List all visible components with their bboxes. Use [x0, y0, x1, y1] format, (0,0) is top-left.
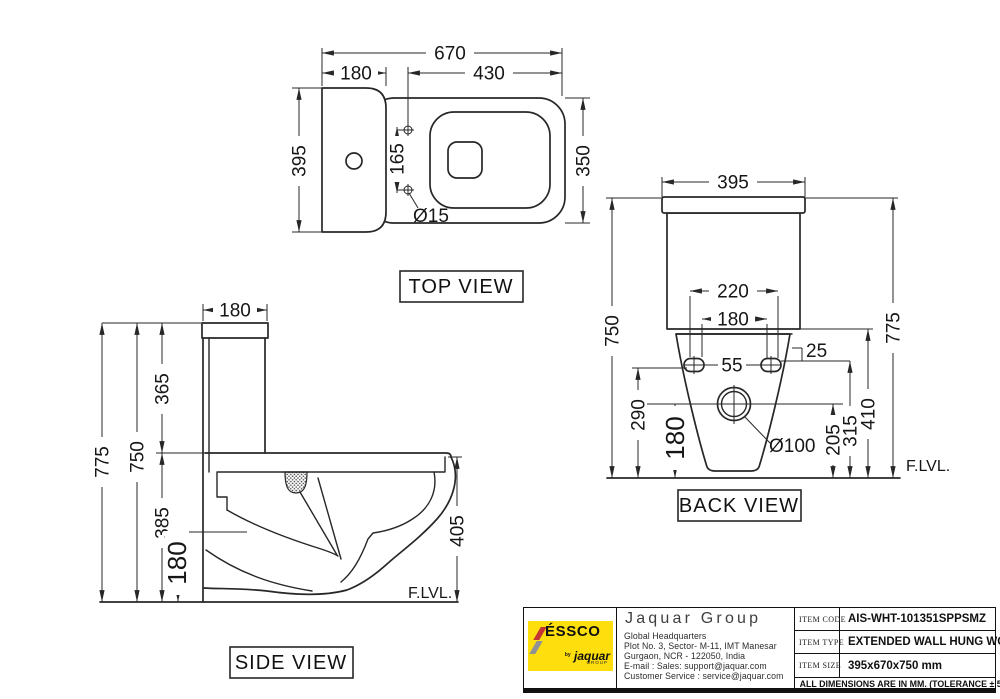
- dim-overall-width: 395: [290, 88, 311, 232]
- svg-text:180: 180: [219, 301, 251, 322]
- tank-outline-top: [322, 88, 386, 232]
- company-name: Jaquar Group: [625, 610, 794, 628]
- svg-text:430: 430: [473, 64, 505, 85]
- svg-text:750: 750: [603, 315, 624, 347]
- svg-text:395: 395: [290, 145, 311, 177]
- fixing-bolt-left: [684, 356, 704, 374]
- bowl-outer-profile-side: [204, 457, 455, 594]
- flush-inlet-hatched: [285, 472, 307, 493]
- svg-text:165: 165: [388, 143, 409, 175]
- address-line: E-mail : Sales: support@jaquar.com: [624, 661, 789, 671]
- seat-underside-line: [218, 457, 445, 472]
- dim-overall-height-side: 775: [93, 323, 114, 602]
- item-size-label: ITEM SIZE: [795, 654, 840, 677]
- dim-tank-bottom-to-floor: 410: [859, 329, 880, 478]
- dim-height-to-tank-side: 750: [128, 323, 149, 602]
- svg-text:350: 350: [574, 145, 595, 177]
- svg-text:365: 365: [153, 373, 174, 405]
- bowl-inner-profile-side: [341, 472, 435, 582]
- dim-height-to-tank-back: 750: [603, 198, 624, 478]
- dim-seat-length: 430: [408, 64, 562, 85]
- svg-text:395: 395: [717, 173, 749, 194]
- dim-overall-length: 670: [322, 44, 562, 65]
- back-view: 395 750 775 220: [603, 173, 951, 522]
- dim-tank-depth-side: 180: [203, 301, 267, 322]
- trap-lower-sweep: [206, 550, 312, 591]
- dimensions-note: ALL DIMENSIONS ARE IN MM. (TOLERANCE ± 5…: [795, 679, 981, 690]
- address-line: Gurgaon, NCR - 122050, India: [624, 651, 789, 661]
- svg-text:220: 220: [717, 282, 749, 303]
- item-type-label: ITEM TYPE: [795, 631, 840, 653]
- svg-text:775: 775: [884, 312, 905, 344]
- trap-upper-sweep: [227, 510, 338, 556]
- svg-text:180: 180: [162, 541, 192, 584]
- fixing-bolt-right: [761, 356, 781, 374]
- logo-cell: ÉSSCO by jaquar GROUP: [524, 608, 616, 688]
- side-view: 180 775 750 365: [93, 301, 469, 679]
- seat-top-line: [205, 453, 451, 457]
- trap-channel-lines: [300, 478, 341, 559]
- tank-lid-back: [662, 197, 805, 213]
- bowl-back-step: [217, 472, 227, 510]
- floor-level-label-back: F.LVL.: [906, 458, 950, 475]
- jaquar-group-small: GROUP: [586, 660, 608, 665]
- side-view-label: SIDE VIEW: [235, 652, 347, 674]
- technical-drawing-sheet: 670 180 430 395 165: [0, 0, 1000, 699]
- dim-outlet-height-back: 180: [660, 404, 690, 478]
- essco-logo: ÉSSCO by jaquar GROUP: [528, 621, 613, 671]
- table-row: ITEM TYPE EXTENDED WALL HUNG WC: [795, 631, 995, 654]
- title-block: ÉSSCO by jaquar GROUP Jaquar Group Globa…: [523, 607, 996, 693]
- svg-text:775: 775: [93, 446, 114, 478]
- logo-stripe-gray-icon: [529, 641, 543, 654]
- dim-bowl-width: 350: [574, 98, 595, 223]
- item-info-table: ITEM CODE AIS-WHT-101351SPPSMZ ITEM TYPE…: [794, 608, 995, 688]
- tank-lid-side: [202, 323, 268, 338]
- table-row: ITEM CODE AIS-WHT-101351SPPSMZ: [795, 608, 995, 631]
- dim-tank-depth-top: 180: [322, 64, 386, 85]
- dim-rim-height: 405: [448, 457, 469, 602]
- svg-text:410: 410: [859, 398, 880, 430]
- svg-text:405: 405: [448, 515, 469, 547]
- svg-text:180: 180: [717, 310, 749, 331]
- svg-text:750: 750: [128, 441, 149, 473]
- dim-bolt-offset: 25: [792, 341, 827, 362]
- item-type-value: EXTENDED WALL HUNG WC: [840, 631, 1000, 653]
- floor-level-label-side: F.LVL.: [408, 585, 452, 602]
- top-view-label: TOP VIEW: [408, 276, 513, 298]
- svg-text:55: 55: [721, 356, 742, 377]
- essco-brand-text: ÉSSCO: [545, 623, 601, 640]
- item-code-label: ITEM CODE: [795, 608, 840, 630]
- address-line: Plot No. 3, Sector- M-11, IMT Manesar: [624, 641, 789, 651]
- back-view-label: BACK VIEW: [679, 495, 799, 517]
- dim-tank-width: 395: [662, 173, 805, 194]
- address-line: Global Headquarters: [624, 631, 789, 641]
- item-size-value: 395x670x750 mm: [840, 654, 995, 677]
- drawing-canvas: 670 180 430 395 165: [0, 0, 1000, 699]
- svg-text:Ø15: Ø15: [413, 206, 449, 227]
- dim-overall-height-back: 775: [884, 198, 905, 478]
- dim-bolt-height-left: 290: [629, 368, 650, 478]
- svg-text:25: 25: [806, 341, 827, 362]
- svg-text:180: 180: [660, 416, 690, 459]
- top-view: 670 180 430 395 165: [290, 44, 595, 303]
- svg-text:670: 670: [434, 44, 466, 65]
- dim-tank-height: 365: [153, 323, 174, 453]
- svg-text:180: 180: [340, 64, 372, 85]
- item-code-value: AIS-WHT-101351SPPSMZ: [840, 608, 995, 630]
- svg-text:Ø100: Ø100: [769, 436, 815, 457]
- svg-text:290: 290: [629, 399, 650, 431]
- address-line: Customer Service : service@jaquar.com: [624, 671, 789, 681]
- table-row: ITEM SIZE 395x670x750 mm: [795, 654, 995, 678]
- company-cell: Jaquar Group Global Headquarters Plot No…: [616, 608, 794, 688]
